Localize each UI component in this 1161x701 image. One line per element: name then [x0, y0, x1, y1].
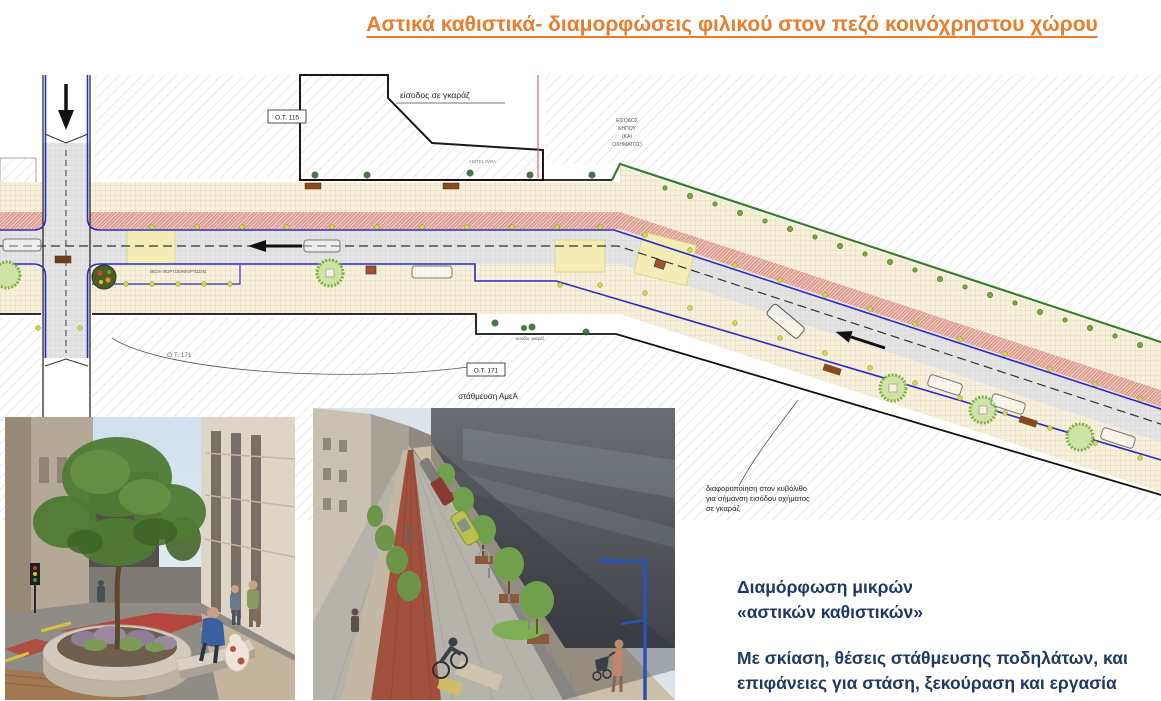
- block-ot171-boxed-label: Ο.Τ. 171: [474, 368, 499, 375]
- render-planter-bench: [5, 417, 295, 700]
- caption-body: Με σκίαση, θέσεις στάθμευσης ποδηλάτων, …: [737, 646, 1161, 696]
- caption-block: Διαμόρφωση μικρών «αστικών καθιστικών» Μ…: [737, 575, 1161, 696]
- slide-page: Αστικά καθιστικά- διαμορφώσεις φιλικού σ…: [0, 0, 1161, 701]
- svg-text:ΕΙΣΟΔΟΣ: ΕΙΣΟΔΟΣ: [616, 118, 638, 124]
- svg-text:ΟΧΗΜΑΤΟΣ): ΟΧΗΜΑΤΟΣ): [612, 142, 642, 148]
- caption-body-line2: επιφάνειες για στάση, ξεκούραση και εργα…: [737, 671, 1161, 696]
- page-title: Αστικά καθιστικά- διαμορφώσεις φιλικού σ…: [320, 13, 1144, 37]
- caption-heading-line2: «αστικών καθιστικών»: [737, 600, 1161, 625]
- render-street-view: [313, 408, 675, 700]
- garage-building: είσοδος σε γκαράζ: [300, 75, 543, 180]
- hotel-label: HOTEL AVRA: [470, 159, 496, 164]
- block-ot171-plain-label: Ο.Τ. 171: [167, 352, 192, 359]
- caption-heading-line1: Διαμόρφωση μικρών: [737, 575, 1161, 600]
- svg-text:διαφοροποίηση στον κυβόλιθο: διαφοροποίηση στον κυβόλιθο: [706, 484, 807, 493]
- caption-body-line1: Με σκίαση, θέσεις στάθμευσης ποδηλάτων, …: [737, 646, 1161, 671]
- flower-planter-icon: [92, 265, 116, 289]
- garage-entrance-small-label: είσοδος γκαράζ: [516, 336, 545, 341]
- caption-heading: Διαμόρφωση μικρών «αστικών καθιστικών»: [737, 575, 1161, 625]
- svg-text:για σήμανση εισόδου οχήματος: για σήμανση εισόδου οχήματος: [706, 494, 810, 503]
- svg-text:σε γκαράζ: σε γκαράζ: [706, 504, 740, 513]
- svg-text:ΚΗΠΟΥ: ΚΗΠΟΥ: [618, 126, 636, 132]
- svg-text:(ΚΑΙ: (ΚΑΙ: [622, 134, 632, 140]
- disabled-parking-label: στάθμευση ΑμεΑ: [458, 392, 518, 401]
- loading-zone-label: ΘΕΣΗ ΦΟΡΤΟΕΚΦΟΡΤΩΣΗΣ: [150, 269, 207, 274]
- garage-entrance-label: είσοδος σε γκαράζ: [400, 90, 470, 100]
- block-ot115-label: Ο.Τ. 115: [275, 115, 299, 122]
